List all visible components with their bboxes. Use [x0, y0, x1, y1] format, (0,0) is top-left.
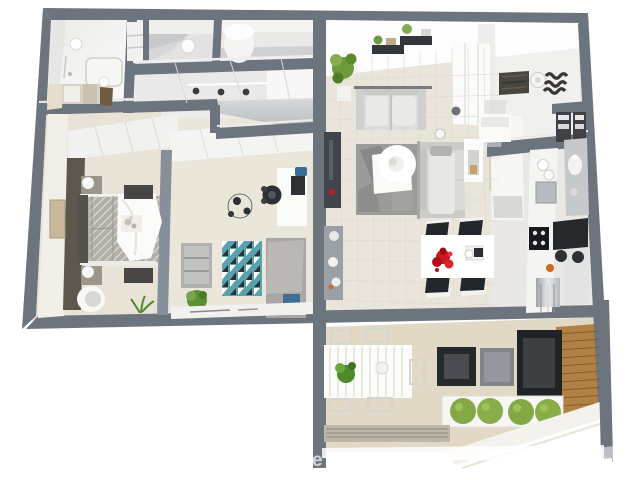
svg-text:e: e — [312, 450, 323, 471]
